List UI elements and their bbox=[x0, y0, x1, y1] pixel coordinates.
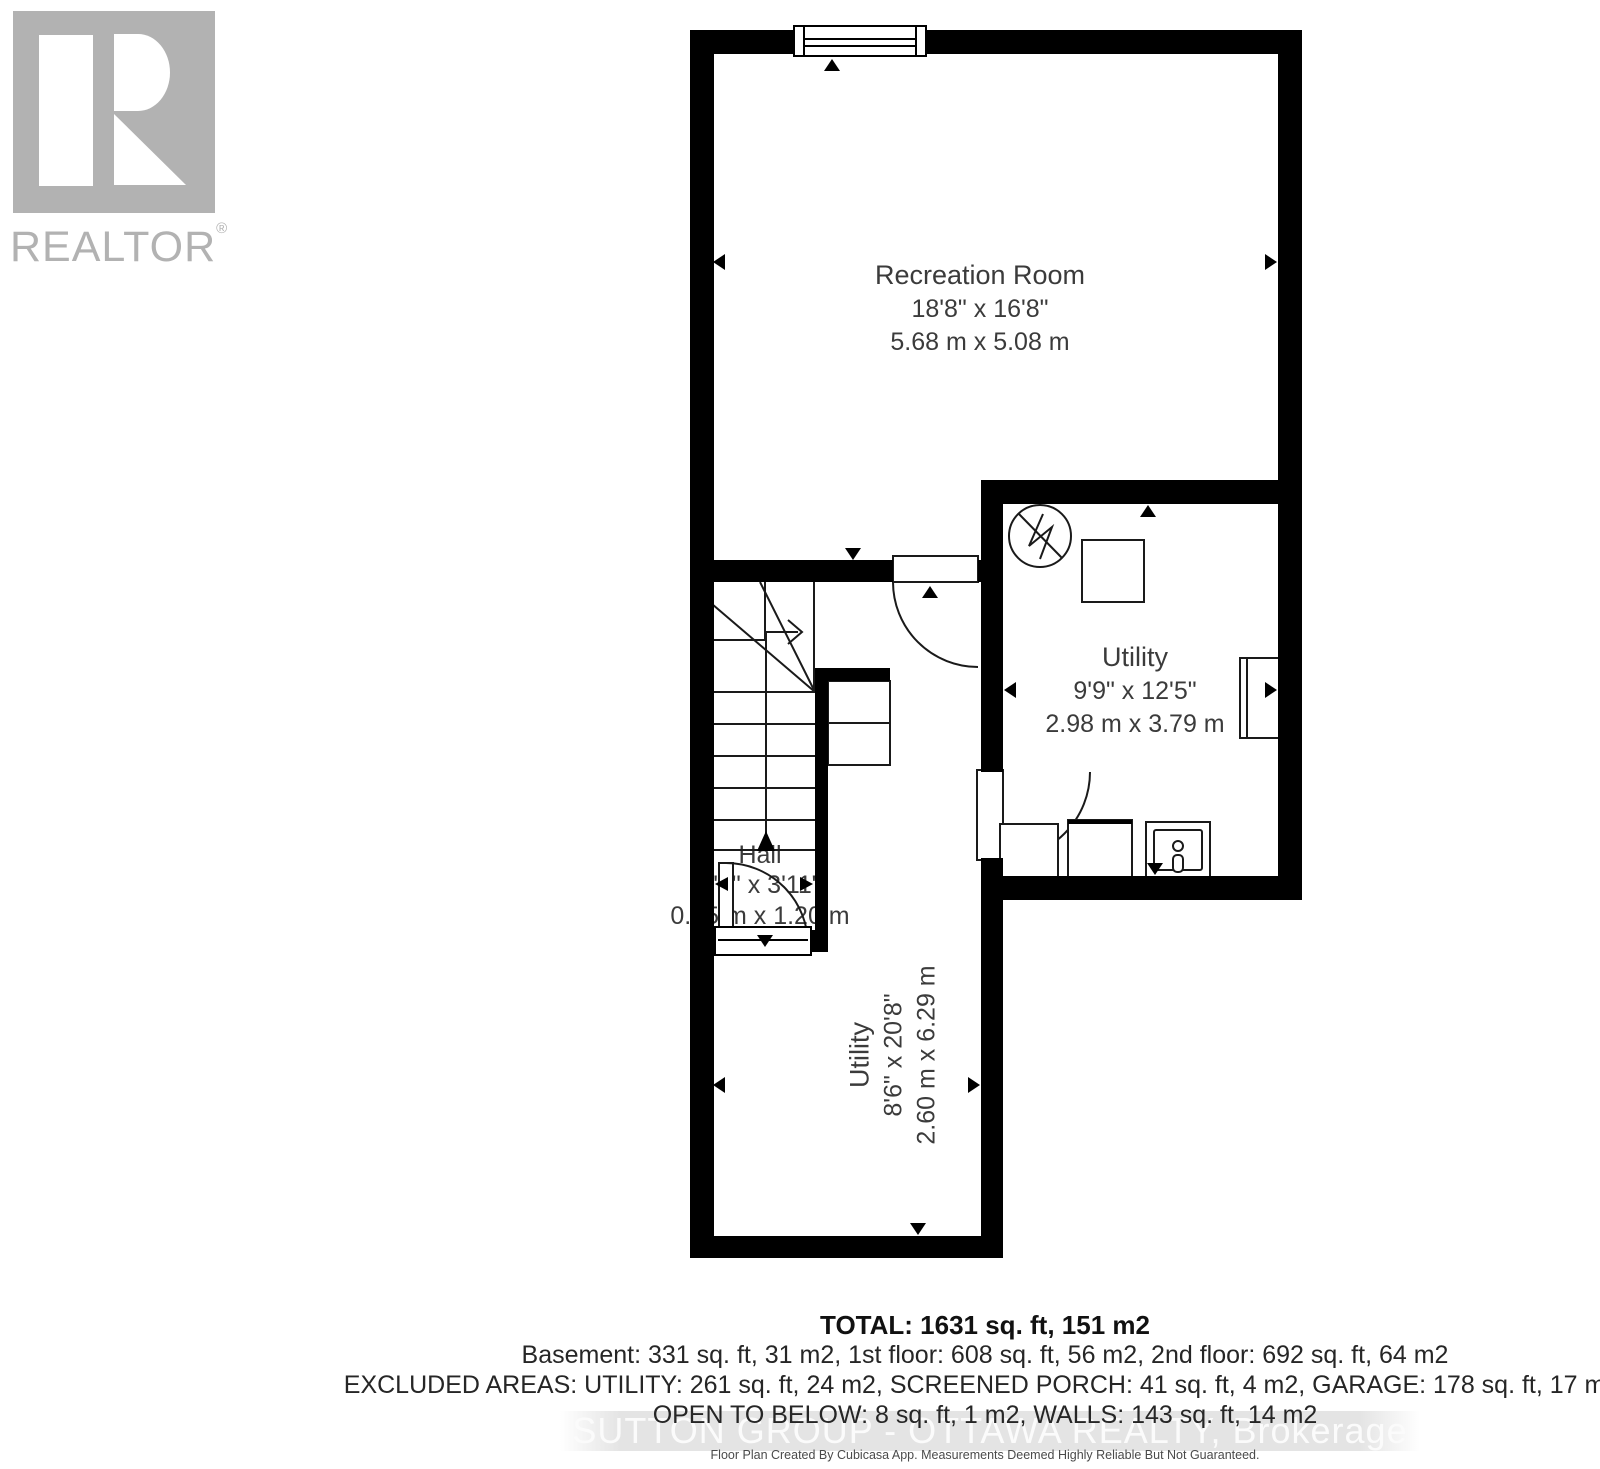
marker-window-top bbox=[824, 59, 840, 71]
floor-plan-page: REALTOR® Recreation Room 18'8" x 16'8" 5… bbox=[0, 0, 1600, 1469]
marker-rec-door bbox=[922, 586, 938, 598]
total-area: TOTAL: 1631 sq. ft, 151 m2 bbox=[300, 1310, 1600, 1340]
marker-hall-left bbox=[715, 877, 728, 891]
marker-utility-top bbox=[1140, 505, 1156, 517]
floor-areas: Basement: 331 sq. ft, 31 m2, 1st floor: … bbox=[300, 1340, 1600, 1370]
excluded-areas-1: EXCLUDED AREAS: UTILITY: 261 sq. ft, 24 … bbox=[300, 1370, 1600, 1400]
disclaimer-text: Floor Plan Created By Cubicasa App. Meas… bbox=[300, 1448, 1600, 1462]
marker-hall-right bbox=[800, 877, 813, 891]
marker-mid-wall bbox=[845, 548, 861, 560]
marker-hall-bottom bbox=[757, 935, 773, 947]
excluded-areas-2: OPEN TO BELOW: 8 sq. ft, 1 m2, WALLS: 14… bbox=[300, 1400, 1600, 1430]
marker-lower-left bbox=[713, 1077, 725, 1093]
marker-rec-right bbox=[1265, 254, 1277, 270]
dimension-markers bbox=[0, 0, 1600, 1469]
area-summary: TOTAL: 1631 sq. ft, 151 m2 Basement: 331… bbox=[300, 1310, 1600, 1430]
marker-lower-right bbox=[968, 1077, 980, 1093]
marker-lower-bottom bbox=[910, 1223, 926, 1235]
marker-utility-right bbox=[1265, 682, 1277, 698]
marker-utility-left bbox=[1004, 682, 1016, 698]
marker-utility-bottom bbox=[1147, 863, 1163, 875]
marker-rec-left bbox=[713, 254, 725, 270]
